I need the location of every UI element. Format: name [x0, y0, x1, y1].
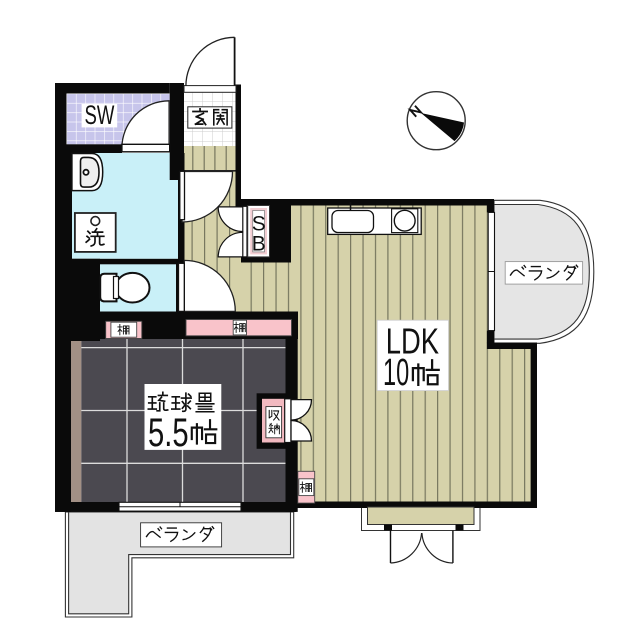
svg-text:10: 10: [383, 350, 409, 393]
svg-text:5.5: 5.5: [148, 411, 189, 456]
svg-text:SW: SW: [84, 100, 114, 130]
svg-text:B: B: [252, 233, 266, 256]
